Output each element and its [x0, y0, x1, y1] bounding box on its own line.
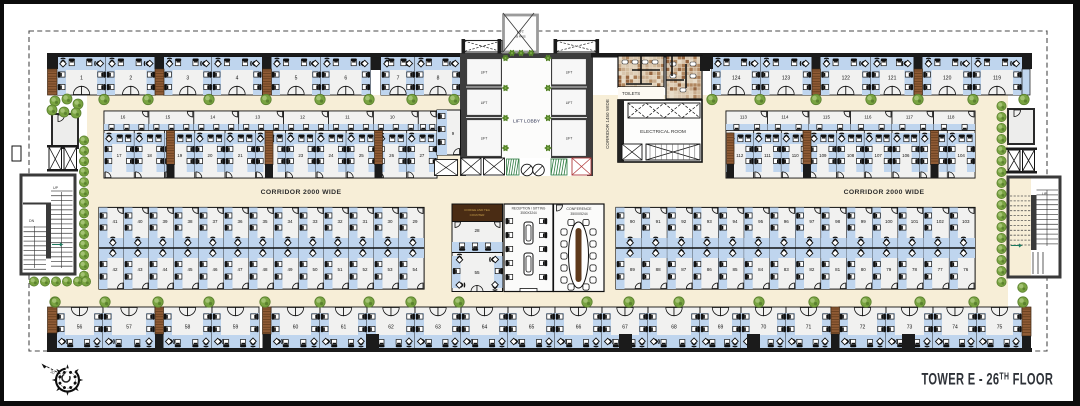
svg-text:43: 43 [137, 267, 143, 272]
svg-text:DN: DN [29, 219, 35, 223]
svg-text:LIFT: LIFT [481, 137, 488, 141]
svg-text:24: 24 [329, 153, 334, 158]
svg-text:81: 81 [835, 267, 841, 272]
svg-text:97: 97 [809, 219, 815, 224]
svg-text:5: 5 [295, 76, 298, 82]
svg-text:27: 27 [419, 153, 424, 158]
svg-text:CORRIDOR 1450 WIDE: CORRIDOR 1450 WIDE [605, 99, 610, 149]
svg-text:50: 50 [312, 267, 318, 272]
svg-text:119: 119 [993, 76, 1001, 82]
svg-text:52: 52 [362, 267, 368, 272]
svg-text:LIFT: LIFT [517, 30, 524, 34]
svg-text:70: 70 [761, 325, 767, 331]
svg-text:32: 32 [337, 219, 343, 224]
svg-text:ELECTRICAL ROOM: ELECTRICAL ROOM [640, 129, 686, 135]
svg-text:19: 19 [177, 153, 182, 158]
svg-text:102: 102 [936, 219, 944, 224]
svg-text:115: 115 [823, 115, 831, 120]
svg-text:58: 58 [185, 325, 191, 331]
svg-text:76: 76 [963, 267, 969, 272]
svg-text:77: 77 [938, 267, 944, 272]
svg-text:106: 106 [902, 153, 910, 158]
svg-text:18: 18 [147, 153, 152, 158]
svg-text:37: 37 [212, 219, 218, 224]
svg-text:COUNTER: COUNTER [470, 213, 486, 217]
svg-text:62: 62 [388, 325, 394, 331]
svg-text:11: 11 [345, 115, 350, 120]
svg-text:45: 45 [187, 267, 193, 272]
svg-text:LIFT: LIFT [566, 70, 573, 74]
svg-text:12: 12 [300, 115, 305, 120]
svg-text:31: 31 [362, 219, 368, 224]
svg-text:41: 41 [112, 219, 118, 224]
svg-text:98: 98 [835, 219, 841, 224]
svg-text:104: 104 [958, 153, 966, 158]
svg-text:74: 74 [952, 325, 958, 331]
svg-text:66: 66 [576, 325, 582, 331]
svg-text:LIFT LOBBY: LIFT LOBBY [513, 119, 541, 125]
svg-text:25: 25 [359, 153, 364, 158]
svg-text:121: 121 [888, 76, 897, 82]
svg-text:59: 59 [233, 325, 239, 331]
svg-text:TOILETS: TOILETS [622, 91, 640, 96]
svg-text:64: 64 [482, 325, 488, 331]
svg-text:75: 75 [997, 325, 1003, 331]
svg-text:68: 68 [671, 325, 677, 331]
svg-text:73: 73 [907, 325, 913, 331]
svg-text:6: 6 [344, 76, 347, 82]
svg-text:103: 103 [962, 219, 970, 224]
svg-text:28: 28 [474, 228, 480, 233]
svg-text:86: 86 [707, 267, 713, 272]
svg-text:29: 29 [412, 219, 418, 224]
svg-text:78: 78 [912, 267, 918, 272]
svg-text:118: 118 [947, 115, 955, 120]
svg-text:CORRIDOR 2000 WIDE: CORRIDOR 2000 WIDE [844, 189, 925, 196]
svg-text:88: 88 [656, 267, 662, 272]
svg-text:RECEPTION / SITTING: RECEPTION / SITTING [512, 207, 546, 211]
svg-text:23: 23 [298, 153, 303, 158]
svg-text:100: 100 [885, 219, 893, 224]
svg-text:109: 109 [819, 153, 827, 158]
svg-text:89: 89 [630, 267, 636, 272]
svg-text:90: 90 [630, 219, 636, 224]
svg-text:71: 71 [806, 325, 812, 331]
svg-text:TOWER E - 26TH FLOOR: TOWER E - 26TH FLOOR [922, 370, 1054, 389]
svg-text:112: 112 [736, 153, 744, 158]
svg-text:16: 16 [120, 115, 125, 120]
svg-text:LIFT: LIFT [566, 101, 573, 105]
svg-text:80: 80 [861, 267, 867, 272]
svg-text:26: 26 [389, 153, 394, 158]
svg-text:60: 60 [293, 325, 299, 331]
svg-text:83: 83 [784, 267, 790, 272]
svg-text:48: 48 [262, 267, 268, 272]
svg-text:7: 7 [397, 76, 400, 82]
svg-text:LIFT: LIFT [566, 137, 573, 141]
svg-text:72: 72 [860, 325, 866, 331]
svg-text:35: 35 [262, 219, 268, 224]
svg-text:14: 14 [210, 115, 215, 120]
svg-text:63: 63 [435, 325, 441, 331]
svg-text:34: 34 [287, 219, 293, 224]
svg-text:47: 47 [237, 267, 243, 272]
svg-text:10: 10 [390, 115, 395, 120]
svg-text:110: 110 [792, 153, 800, 158]
svg-text:96: 96 [784, 219, 790, 224]
svg-text:39: 39 [162, 219, 168, 224]
svg-text:113: 113 [740, 115, 748, 120]
svg-text:94: 94 [732, 219, 738, 224]
svg-text:21: 21 [238, 153, 243, 158]
svg-text:82: 82 [809, 267, 815, 272]
svg-text:108: 108 [847, 153, 855, 158]
svg-text:69: 69 [718, 325, 724, 331]
svg-text:95: 95 [758, 219, 764, 224]
svg-text:122: 122 [842, 76, 851, 82]
svg-text:87: 87 [681, 267, 687, 272]
svg-text:3500X3244: 3500X3244 [520, 211, 537, 215]
svg-text:56: 56 [77, 325, 83, 331]
svg-text:101: 101 [911, 219, 919, 224]
svg-text:91: 91 [656, 219, 662, 224]
svg-text:15: 15 [165, 115, 170, 120]
svg-text:65: 65 [529, 325, 535, 331]
svg-text:4: 4 [236, 76, 239, 82]
svg-text:93: 93 [707, 219, 713, 224]
svg-text:116: 116 [864, 115, 872, 120]
svg-text:17: 17 [117, 153, 122, 158]
svg-text:1: 1 [80, 76, 83, 82]
svg-text:67: 67 [622, 325, 628, 331]
svg-text:61: 61 [341, 325, 347, 331]
svg-text:79: 79 [886, 267, 892, 272]
svg-text:85: 85 [732, 267, 738, 272]
svg-text:40: 40 [137, 219, 143, 224]
svg-text:107: 107 [875, 153, 883, 158]
svg-text:LIFT: LIFT [481, 101, 488, 105]
svg-text:55: 55 [474, 270, 480, 275]
svg-text:120: 120 [943, 76, 952, 82]
svg-text:92: 92 [681, 219, 687, 224]
svg-text:44: 44 [162, 267, 168, 272]
svg-text:13: 13 [255, 115, 260, 120]
svg-text:57: 57 [126, 325, 132, 331]
svg-text:38: 38 [187, 219, 193, 224]
svg-text:8: 8 [437, 76, 440, 82]
svg-text:CORRIDOR 2000 WIDE: CORRIDOR 2000 WIDE [261, 189, 342, 196]
svg-text:COFFEE AND TEA: COFFEE AND TEA [464, 208, 490, 212]
svg-text:33: 33 [312, 219, 318, 224]
svg-text:CONFERENCE: CONFERENCE [566, 207, 592, 211]
svg-text:LIFT: LIFT [481, 70, 488, 74]
svg-text:20: 20 [208, 153, 213, 158]
svg-text:54: 54 [412, 267, 418, 272]
svg-text:53: 53 [387, 267, 393, 272]
svg-text:123: 123 [782, 76, 791, 82]
svg-text:51: 51 [337, 267, 343, 272]
svg-text:30: 30 [387, 219, 393, 224]
svg-text:36: 36 [237, 219, 243, 224]
svg-text:42: 42 [112, 267, 118, 272]
svg-text:117: 117 [906, 115, 914, 120]
svg-text:3500X5244: 3500X5244 [570, 212, 587, 216]
svg-text:124: 124 [732, 76, 741, 82]
svg-text:114: 114 [781, 115, 789, 120]
svg-text:99: 99 [861, 219, 867, 224]
svg-text:46: 46 [212, 267, 218, 272]
svg-text:84: 84 [758, 267, 764, 272]
svg-text:UP: UP [53, 186, 59, 190]
svg-text:2: 2 [129, 76, 132, 82]
svg-text:49: 49 [287, 267, 293, 272]
svg-text:3: 3 [186, 76, 189, 82]
svg-text:111: 111 [764, 153, 771, 158]
svg-text:16 PASS: 16 PASS [515, 35, 526, 39]
